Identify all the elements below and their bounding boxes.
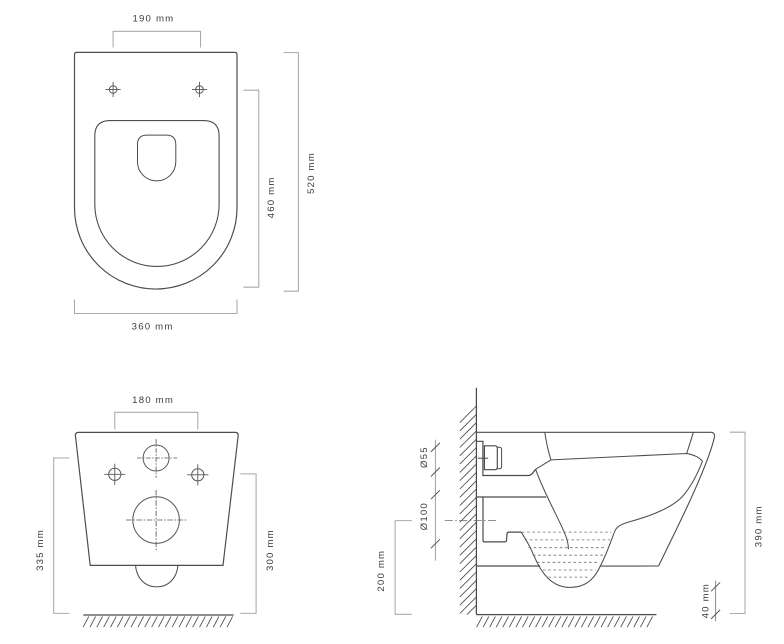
svg-text:Ø100: Ø100 bbox=[419, 502, 430, 530]
svg-text:360 mm: 360 mm bbox=[132, 321, 174, 332]
svg-text:335 mm: 335 mm bbox=[35, 529, 46, 571]
svg-text:Ø55: Ø55 bbox=[419, 446, 430, 468]
svg-text:40 mm: 40 mm bbox=[701, 583, 712, 618]
svg-text:190 mm: 190 mm bbox=[132, 13, 174, 24]
svg-text:200 mm: 200 mm bbox=[376, 550, 387, 592]
svg-text:180 mm: 180 mm bbox=[132, 395, 174, 406]
svg-text:300 mm: 300 mm bbox=[265, 529, 276, 571]
svg-text:390 mm: 390 mm bbox=[754, 505, 765, 547]
svg-text:460 mm: 460 mm bbox=[266, 176, 277, 218]
svg-text:520 mm: 520 mm bbox=[306, 152, 317, 194]
